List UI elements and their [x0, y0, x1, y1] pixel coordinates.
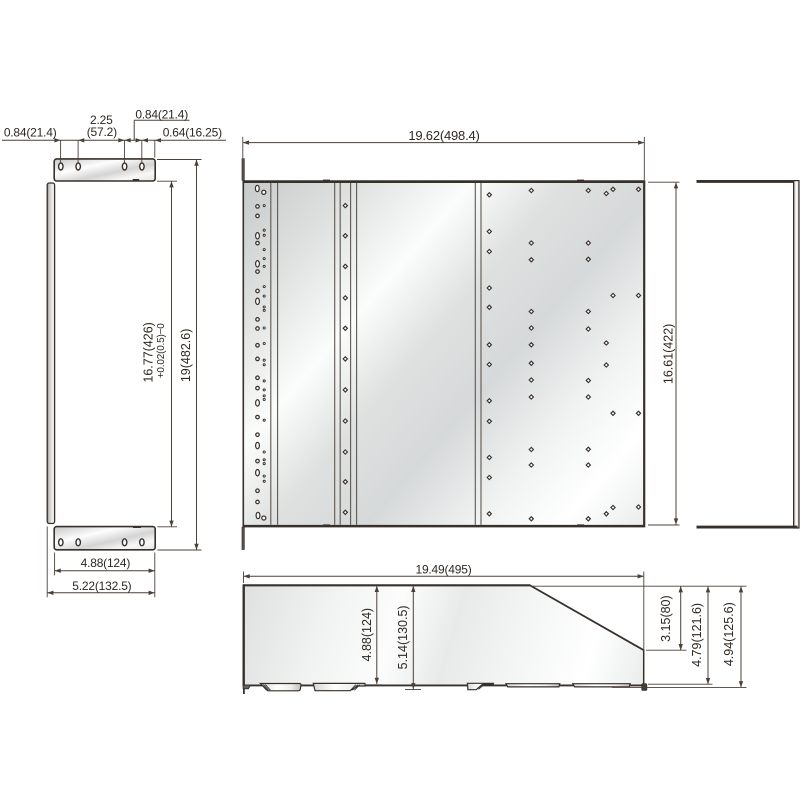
svg-text:16.77(426): 16.77(426) [142, 322, 156, 382]
svg-text:3.15(80): 3.15(80) [659, 595, 673, 642]
svg-text:0.84(21.4): 0.84(21.4) [135, 107, 188, 121]
svg-text:5.14(130.5): 5.14(130.5) [396, 605, 410, 669]
svg-text:16.61(422): 16.61(422) [661, 324, 675, 384]
svg-text:19(482.6): 19(482.6) [179, 329, 193, 383]
svg-text:5.22(132.5): 5.22(132.5) [72, 579, 131, 593]
svg-text:+0.02(0.5)−0: +0.02(0.5)−0 [156, 323, 167, 379]
svg-text:4.94(125.6): 4.94(125.6) [722, 602, 736, 666]
svg-text:4.79(121.6): 4.79(121.6) [690, 603, 704, 667]
svg-text:19.49(495): 19.49(495) [415, 562, 471, 576]
svg-text:0.64(16.25): 0.64(16.25) [163, 125, 222, 139]
svg-text:19.62(498.4): 19.62(498.4) [408, 128, 479, 143]
svg-text:0.84(21.4): 0.84(21.4) [4, 125, 57, 139]
svg-text:(57.2): (57.2) [87, 125, 117, 139]
svg-text:4.88(124): 4.88(124) [360, 608, 374, 662]
svg-text:4.88(124): 4.88(124) [81, 556, 131, 570]
